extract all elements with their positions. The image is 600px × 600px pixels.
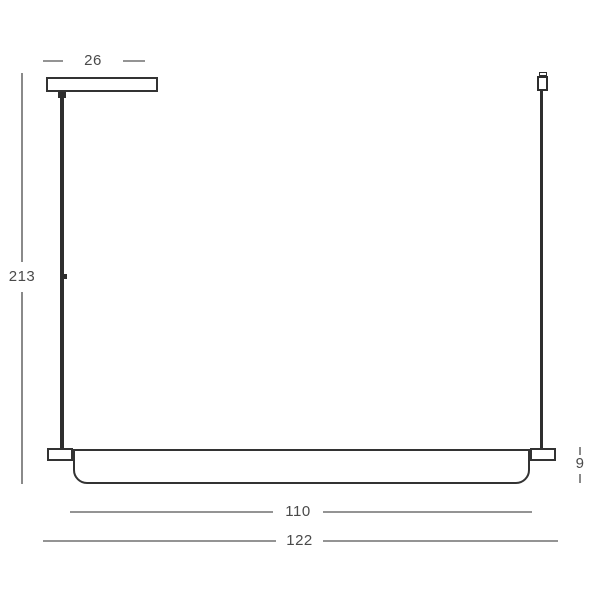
dim-canopy-width-label: 26 bbox=[63, 53, 123, 69]
dim-fixture-height-line-top bbox=[579, 447, 581, 455]
dim-height-line-top bbox=[21, 73, 23, 262]
dim-inner-length-line-right bbox=[323, 511, 532, 513]
dim-suspension-height-label: 213 bbox=[3, 269, 41, 285]
left-suspension-rod bbox=[60, 92, 64, 448]
dim-canopy-line-left bbox=[43, 60, 63, 62]
fixture-endcap-left bbox=[47, 448, 73, 461]
dim-total-length-line-left bbox=[43, 540, 276, 542]
dim-total-length-line-right bbox=[323, 540, 558, 542]
dim-fixture-height-label: 9 bbox=[572, 456, 588, 472]
cable-gripper-body bbox=[537, 76, 548, 91]
right-suspension-cable bbox=[540, 91, 543, 448]
rod-adjustment-tick bbox=[64, 274, 67, 279]
dim-canopy-line-right bbox=[123, 60, 145, 62]
dim-inner-length-line-left bbox=[70, 511, 273, 513]
dim-inner-length-label: 110 bbox=[273, 504, 323, 520]
dim-height-line-bottom bbox=[21, 292, 23, 484]
fixture-endcap-right bbox=[530, 448, 556, 461]
dim-fixture-height-line-bottom bbox=[579, 474, 581, 483]
light-fixture-body bbox=[73, 449, 530, 484]
dim-total-length-label: 122 bbox=[276, 533, 323, 549]
dimension-diagram: 26 213 9 110 122 bbox=[0, 0, 600, 600]
ceiling-canopy bbox=[46, 77, 158, 92]
